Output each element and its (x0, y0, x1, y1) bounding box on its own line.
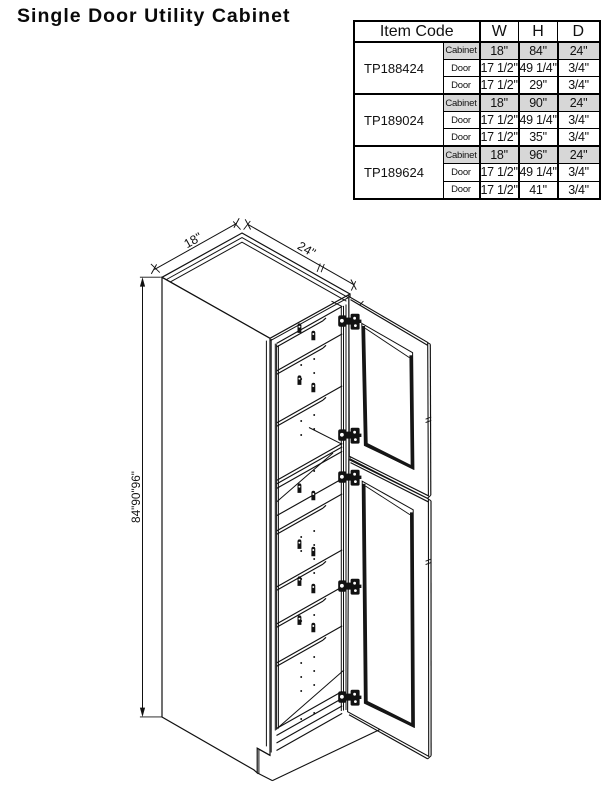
svg-text:84"90"96": 84"90"96" (129, 471, 143, 523)
svg-text:24": 24" (295, 239, 318, 260)
svg-text:18": 18" (182, 230, 205, 251)
